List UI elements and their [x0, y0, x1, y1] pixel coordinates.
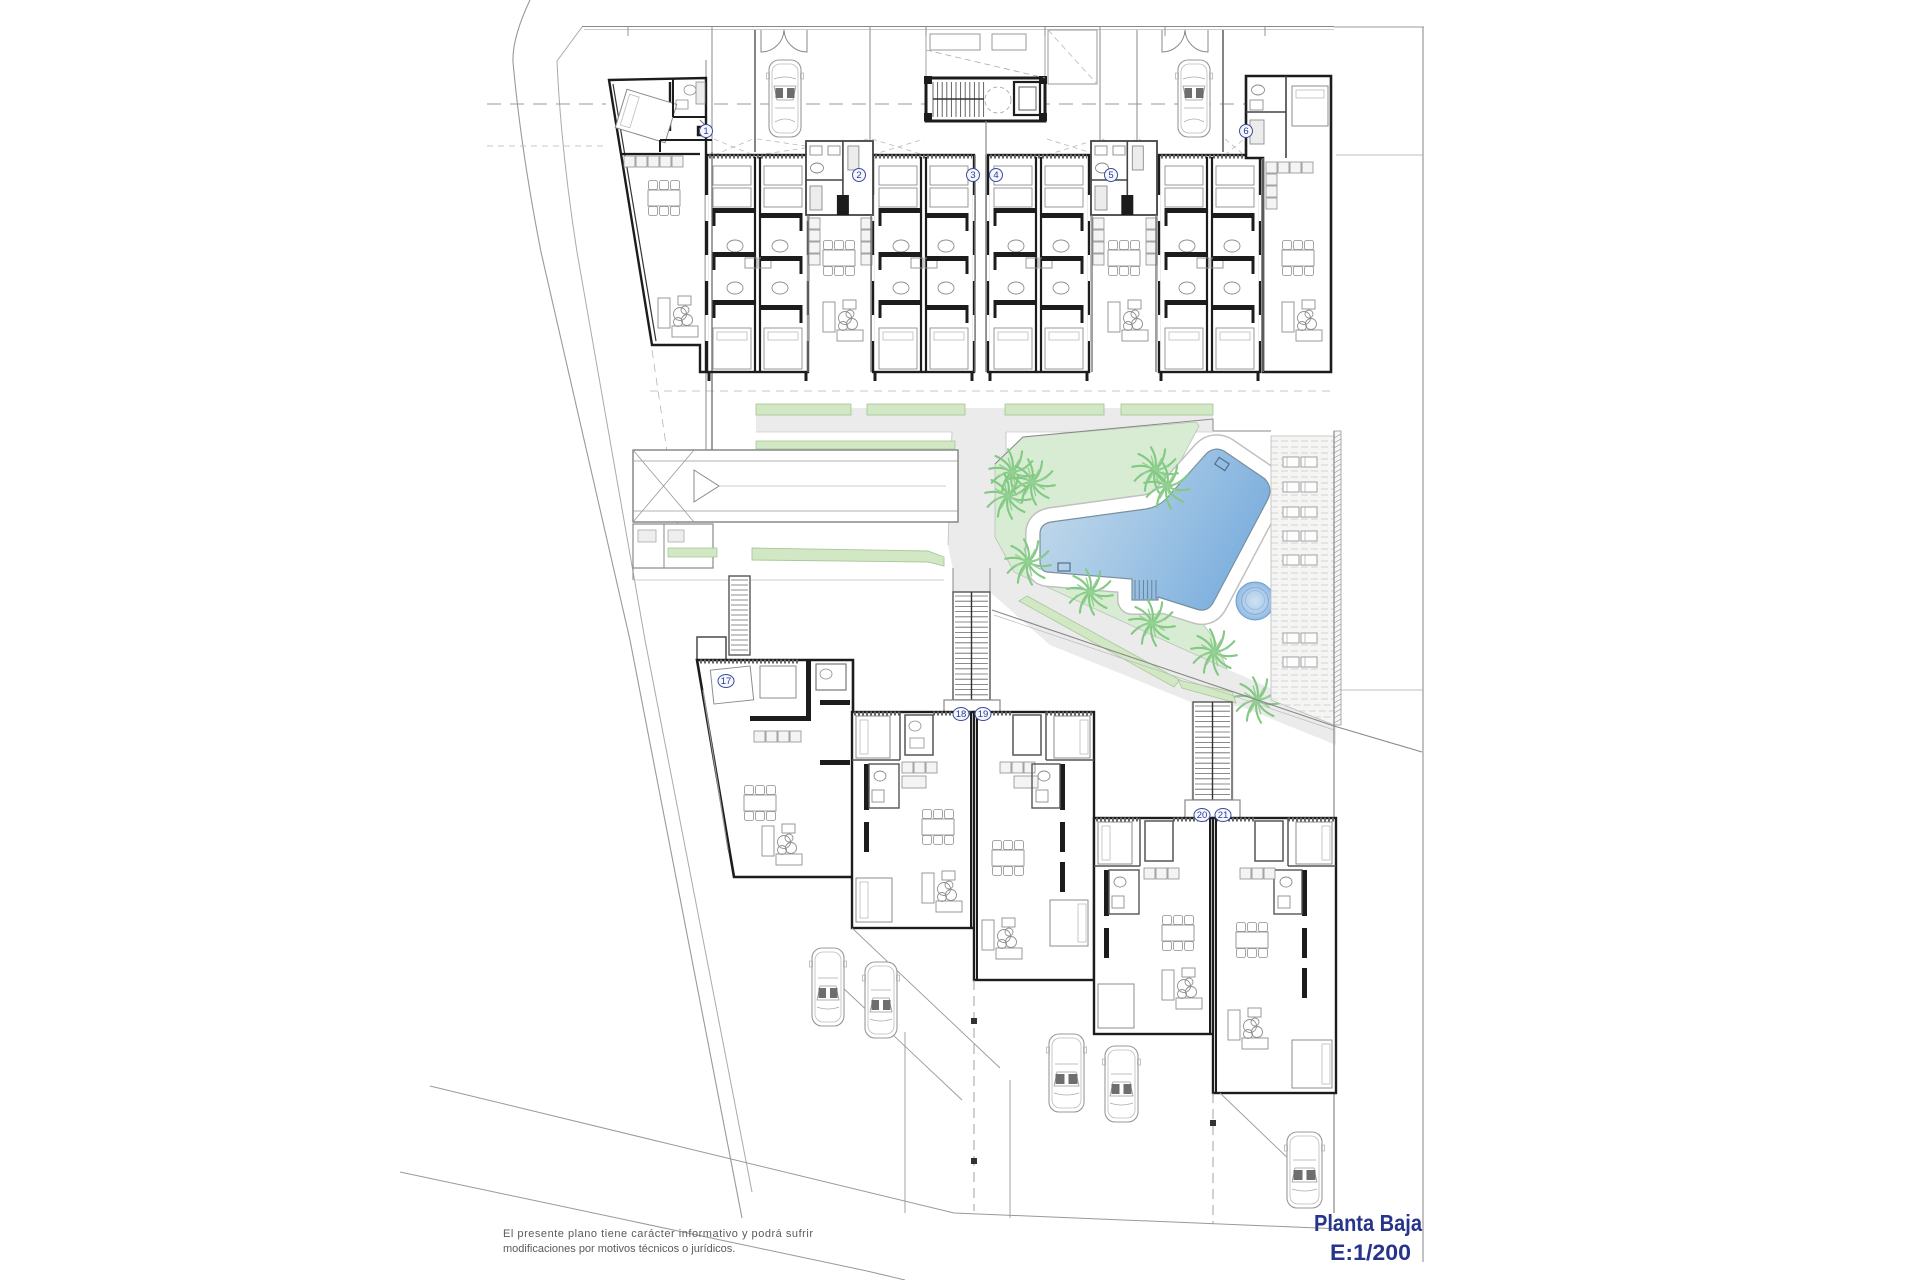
- svg-text:20: 20: [1197, 810, 1208, 821]
- svg-text:modificaciones por motivos téc: modificaciones por motivos técnicos o ju…: [503, 1243, 735, 1255]
- svg-text:21: 21: [1218, 810, 1229, 821]
- svg-text:Planta Baja: Planta Baja: [1314, 1210, 1422, 1236]
- svg-text:17: 17: [721, 676, 732, 687]
- svg-text:1: 1: [703, 126, 708, 137]
- svg-text:2: 2: [856, 170, 861, 181]
- svg-text:19: 19: [978, 709, 989, 720]
- svg-text:El presente plano tiene caráct: El presente plano tiene carácter informa…: [503, 1228, 813, 1240]
- svg-text:3: 3: [970, 170, 975, 181]
- svg-text:E:1/200: E:1/200: [1330, 1240, 1411, 1265]
- svg-text:4: 4: [993, 170, 998, 181]
- svg-text:18: 18: [956, 709, 967, 720]
- svg-text:5: 5: [1108, 170, 1113, 181]
- svg-text:6: 6: [1243, 126, 1248, 137]
